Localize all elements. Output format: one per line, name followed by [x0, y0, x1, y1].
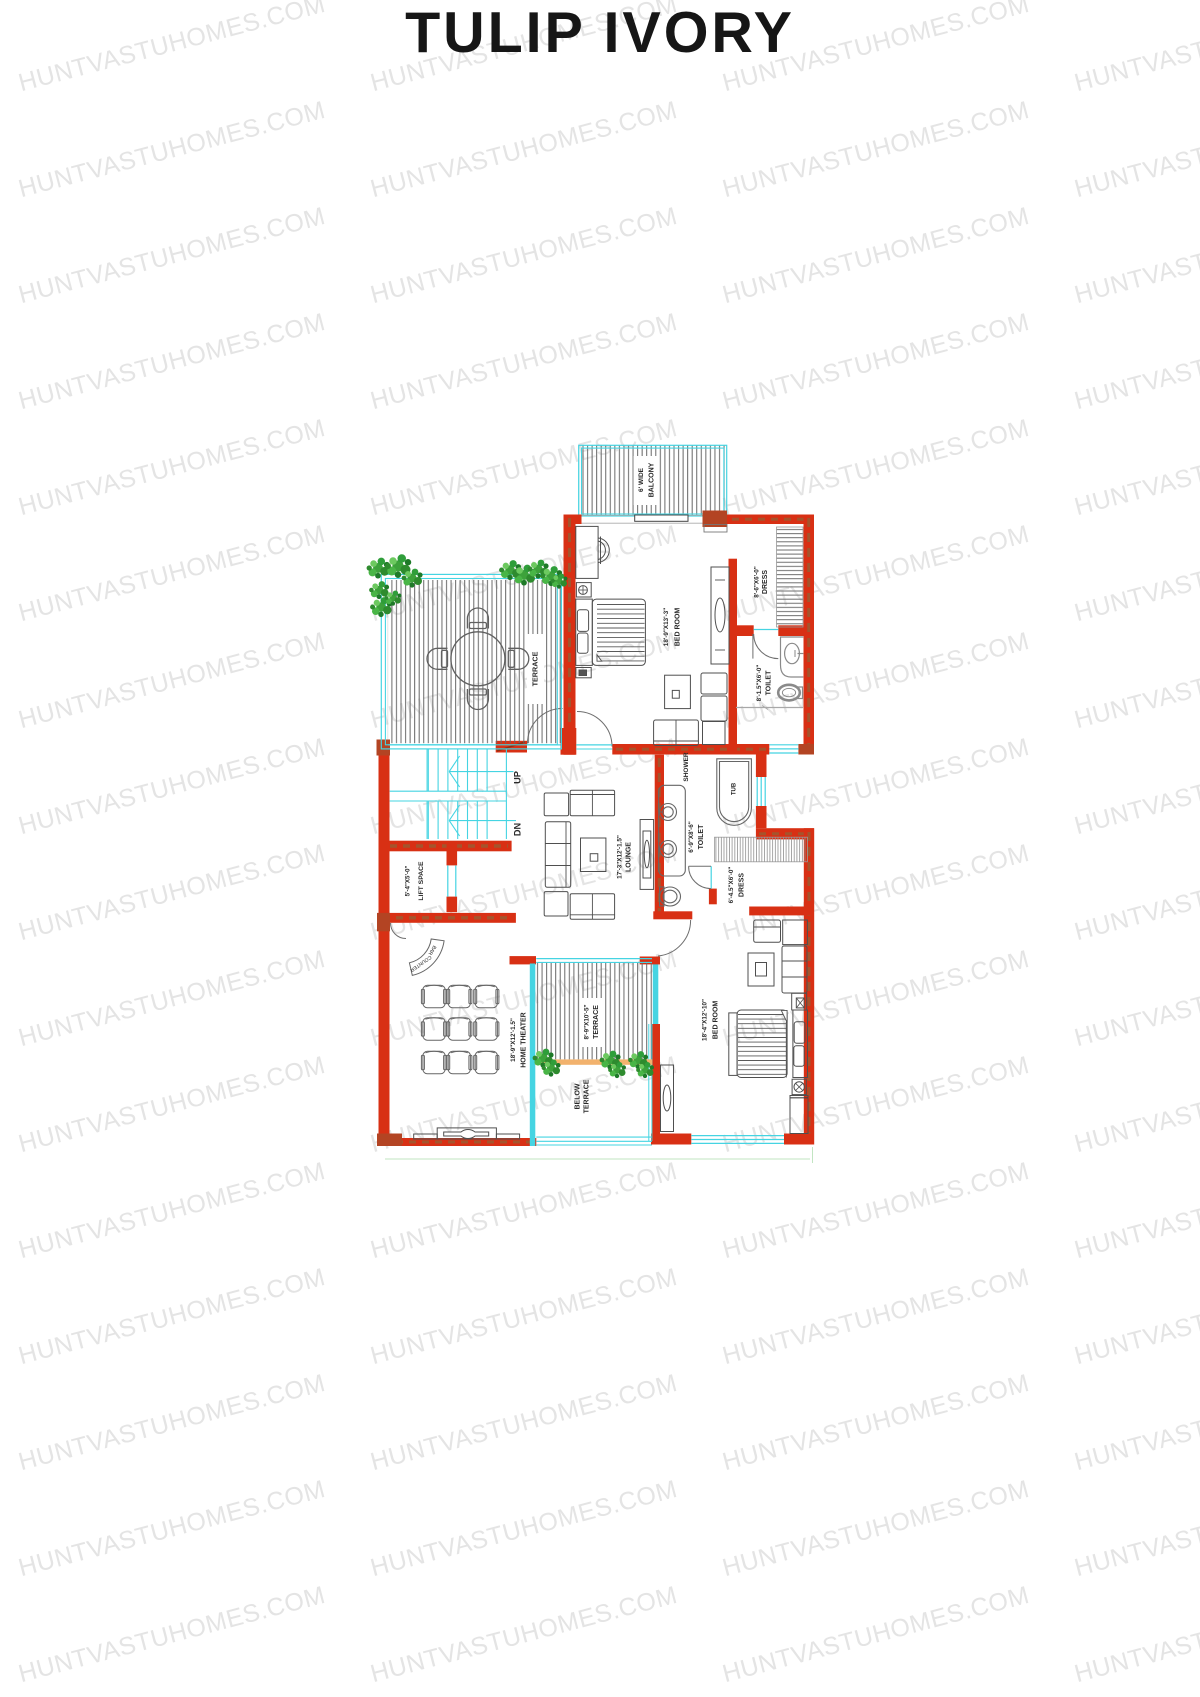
svg-text:5'-4"X5'-0": 5'-4"X5'-0" [405, 866, 412, 897]
svg-text:TOILET: TOILET [698, 824, 705, 849]
svg-text:SHOWER: SHOWER [683, 752, 690, 782]
svg-text:6'-9"X8'-6": 6'-9"X8'-6" [688, 821, 695, 852]
svg-text:COUNTER: COUNTER [408, 954, 432, 973]
svg-text:8'-9"X10'-5": 8'-9"X10'-5" [584, 1005, 591, 1040]
svg-text:6'-4.5"X6'-0": 6'-4.5"X6'-0" [728, 867, 735, 904]
svg-text:DN: DN [512, 823, 522, 837]
svg-text:18'-4"X12'-10": 18'-4"X12'-10" [702, 999, 709, 1041]
svg-text:UP: UP [512, 771, 522, 784]
svg-text:BED ROOM: BED ROOM [674, 608, 681, 647]
svg-text:8'-1.5"X6'-0": 8'-1.5"X6'-0" [756, 665, 763, 702]
svg-text:BED ROOM: BED ROOM [712, 1001, 719, 1040]
svg-text:LIFT SPACE: LIFT SPACE [418, 861, 425, 901]
svg-text:TERRACE: TERRACE [583, 1079, 590, 1113]
svg-text:BALCONY: BALCONY [648, 462, 655, 497]
svg-text:BELOW: BELOW [575, 1083, 582, 1109]
svg-text:TERRACE: TERRACE [593, 1005, 600, 1039]
svg-text:18'-9"X12'-1.5": 18'-9"X12'-1.5" [510, 1018, 517, 1062]
svg-text:TERRACE: TERRACE [530, 651, 539, 686]
svg-text:HOME THEATER: HOME THEATER [520, 1012, 527, 1067]
svg-text:17'-3"X12'-1.5": 17'-3"X12'-1.5" [617, 835, 624, 879]
svg-text:TUB: TUB [731, 782, 737, 795]
svg-text:DRESS: DRESS [762, 570, 769, 594]
svg-text:TOILET: TOILET [765, 670, 772, 695]
svg-text:LOUNGE: LOUNGE [625, 842, 632, 872]
svg-text:DRESS: DRESS [738, 873, 745, 897]
svg-text:18'-9"X13'-3": 18'-9"X13'-3" [663, 608, 670, 646]
svg-text:8'-6"X6'-0": 8'-6"X6'-0" [754, 566, 761, 597]
svg-text:6' WIDE: 6' WIDE [638, 467, 645, 492]
